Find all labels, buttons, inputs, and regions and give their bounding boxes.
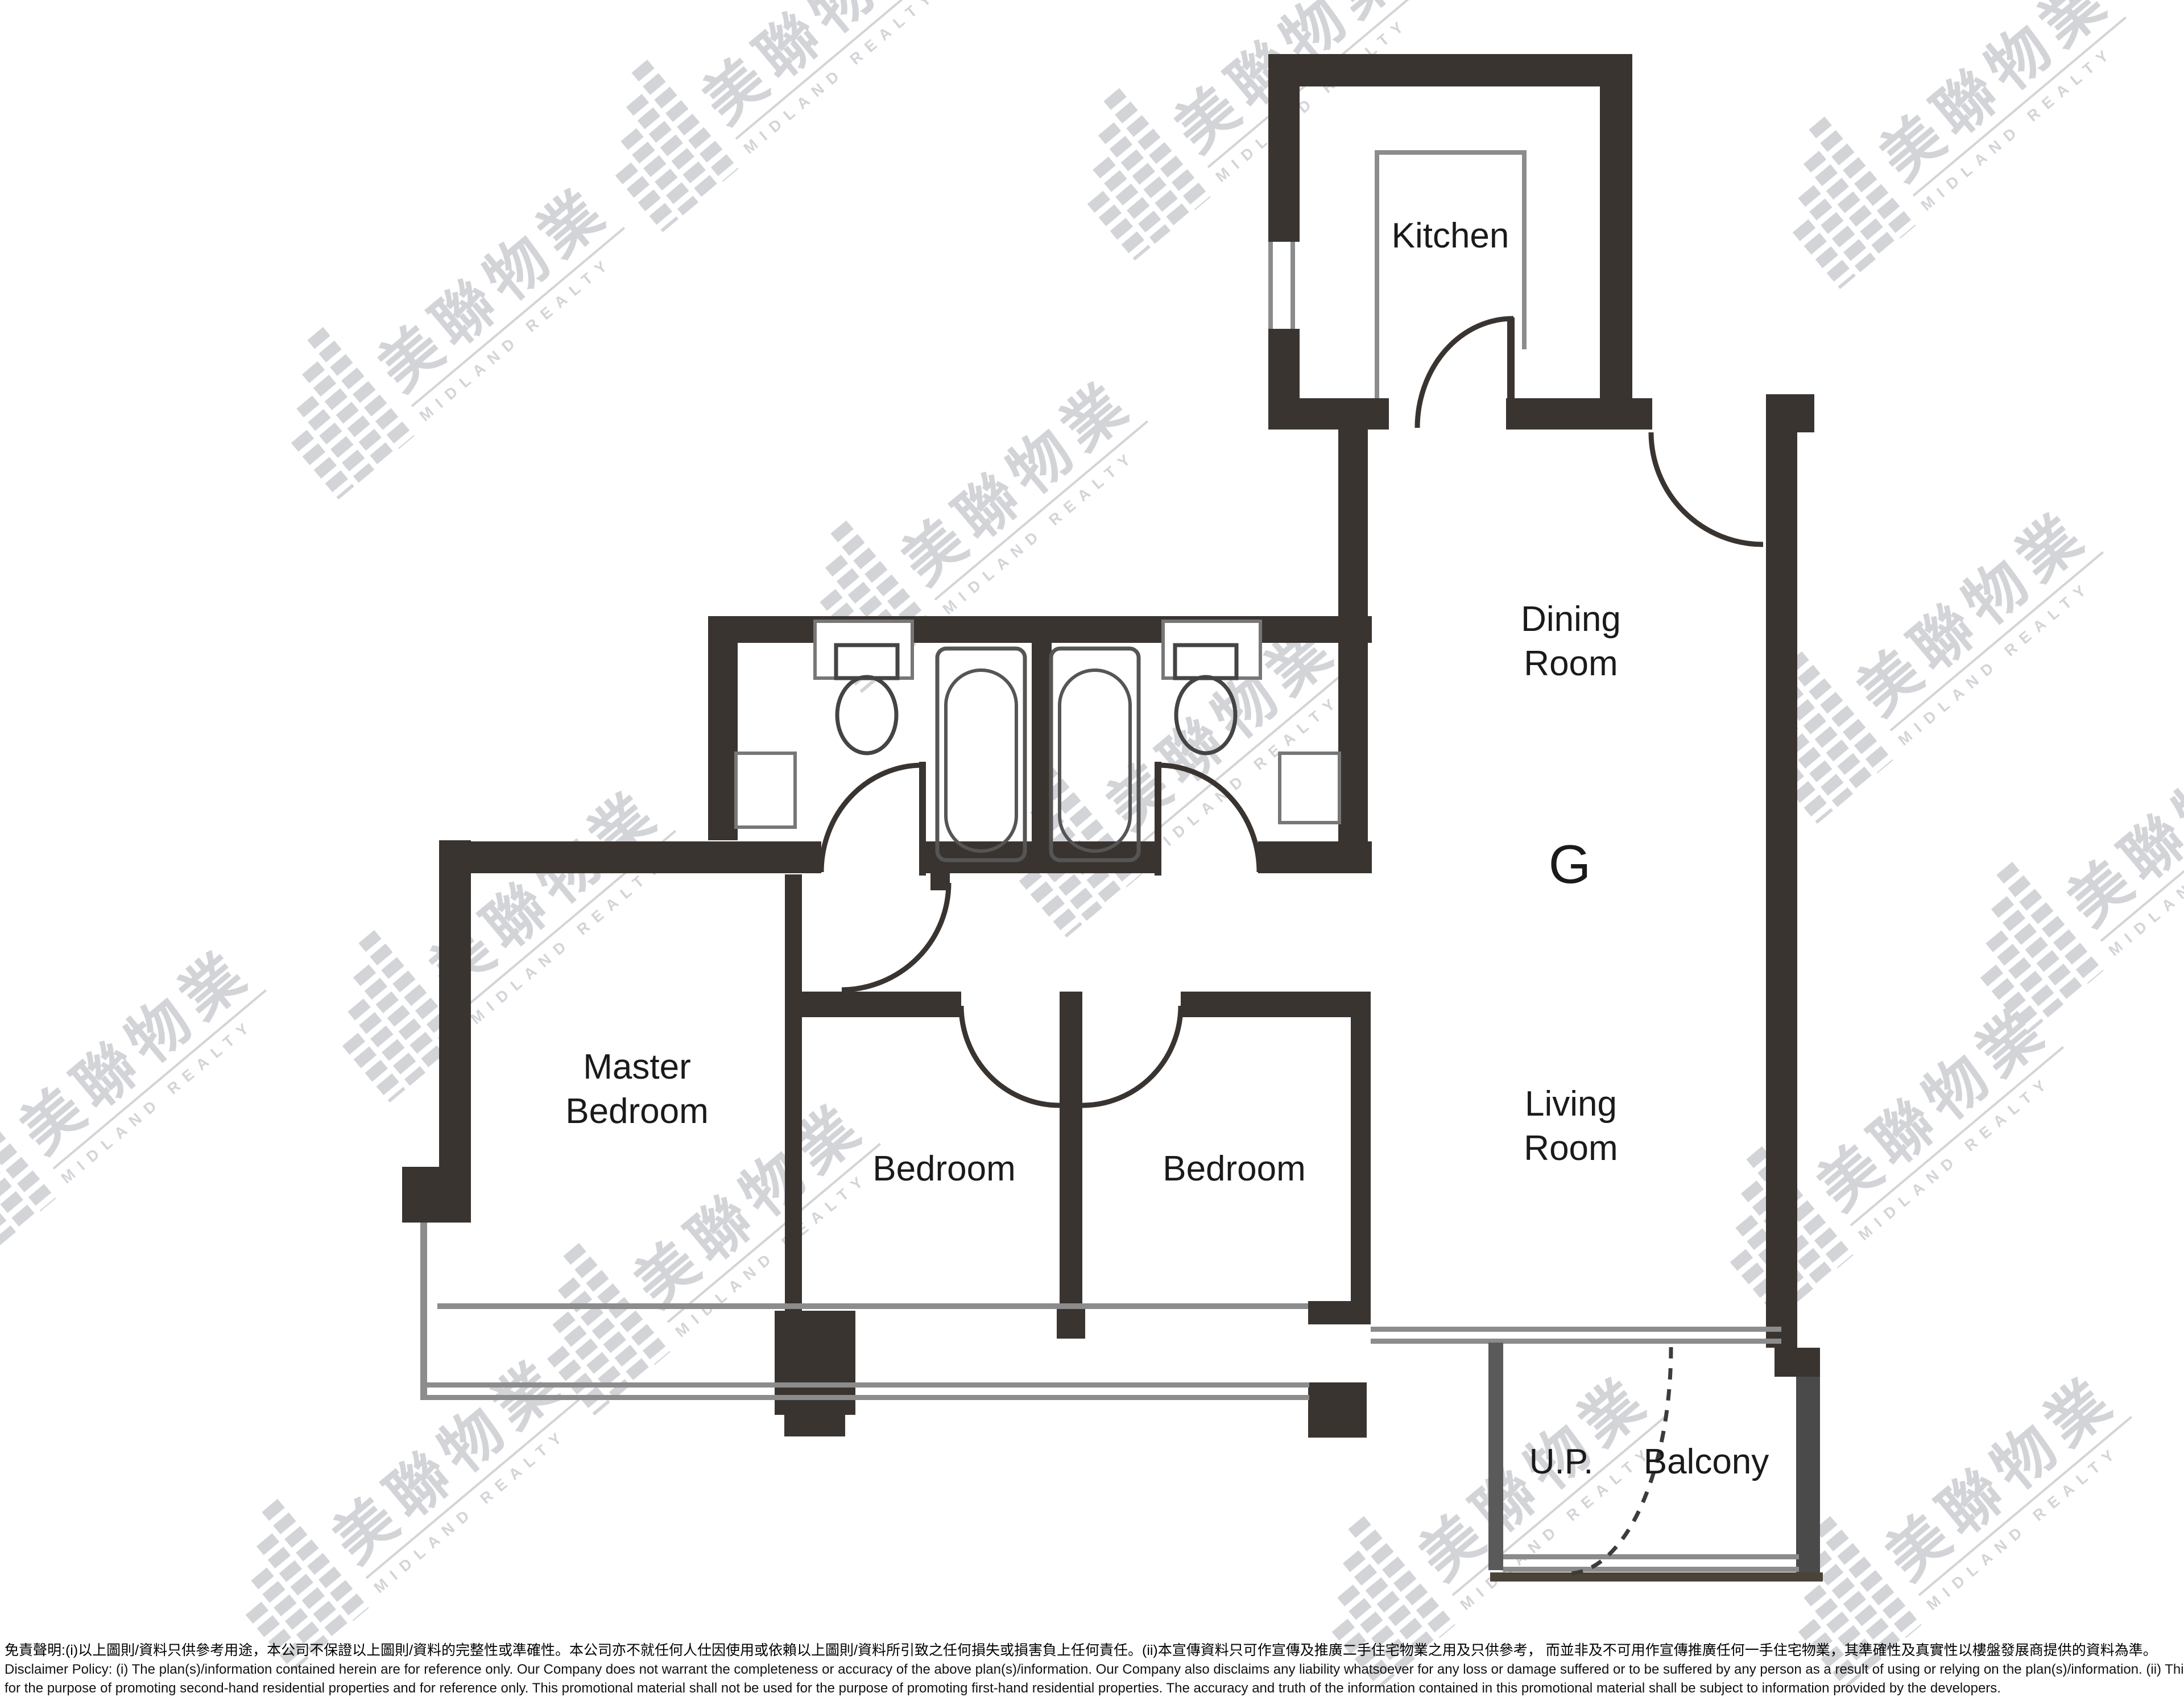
bedroom1-label: Bedroom <box>872 1147 1016 1191</box>
room-labels: Kitchen Dining Room G Living Room Master… <box>0 0 2184 1701</box>
living-room-label: Living Room <box>1524 1082 1618 1171</box>
utility-platform-label: U.P. <box>1529 1440 1594 1484</box>
disclaimer-english-line2: for the purpose of promoting second-hand… <box>5 1679 2179 1698</box>
bedroom2-label: Bedroom <box>1163 1147 1306 1191</box>
dining-room-label: Dining Room <box>1521 597 1621 686</box>
balcony-label: Balcony <box>1644 1440 1769 1484</box>
disclaimer-block: 免責聲明:(i)以上圖則/資料只供參考用途，本公司不保證以上圖則/資料的完整性或… <box>5 1641 2179 1698</box>
unit-letter-label: G <box>1549 843 1591 887</box>
disclaimer-english-line1: Disclaimer Policy: (i) The plan(s)/infor… <box>5 1660 2179 1679</box>
disclaimer-chinese: 免責聲明:(i)以上圖則/資料只供參考用途，本公司不保證以上圖則/資料的完整性或… <box>5 1641 2179 1660</box>
master-bedroom-label: Master Bedroom <box>565 1045 709 1134</box>
kitchen-label: Kitchen <box>1392 214 1509 258</box>
